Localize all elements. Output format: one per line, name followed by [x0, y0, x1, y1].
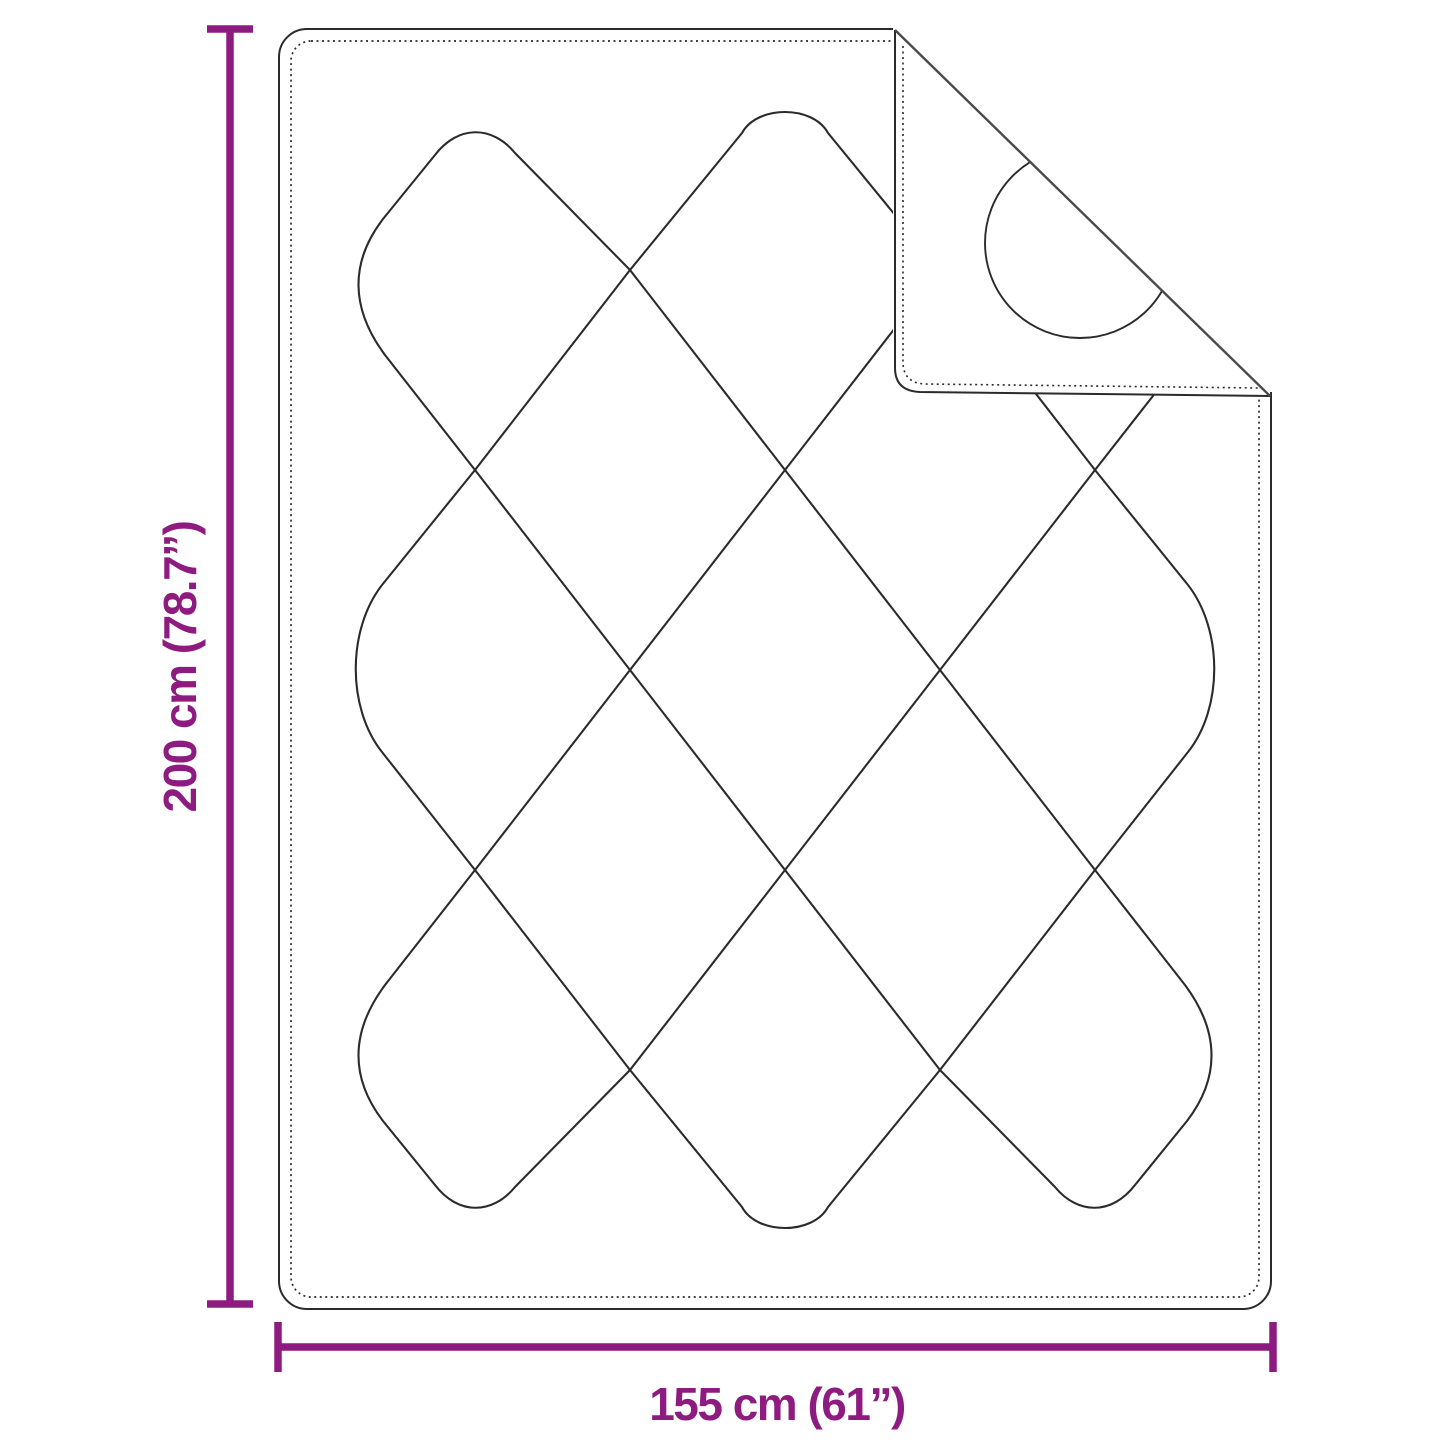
horizontal-dimension-line [275, 1322, 1276, 1372]
product-dimension-diagram: 200 cm (78.7”) 155 cm (61”) [0, 0, 1445, 1445]
vertical-dimension [207, 26, 253, 1307]
vertical-dimension-label: 200 cm (78.7”) [154, 521, 206, 812]
horizontal-dimension [275, 1322, 1276, 1372]
quilt-turn-left [356, 470, 475, 870]
quilt-turn-bottom-right [940, 870, 1212, 1208]
horizontal-dimension-label: 155 cm (61”) [649, 1378, 905, 1430]
quilt-turn-bottom-left [358, 870, 630, 1208]
quilt-turn-top-left [358, 132, 630, 470]
quilt-turn-bottom-middle [630, 1070, 940, 1228]
vertical-dimension-line [207, 26, 253, 1307]
quilt-turn-right [1095, 470, 1214, 870]
blanket-dimension-drawing: 200 cm (78.7”) 155 cm (61”) [0, 0, 1445, 1445]
